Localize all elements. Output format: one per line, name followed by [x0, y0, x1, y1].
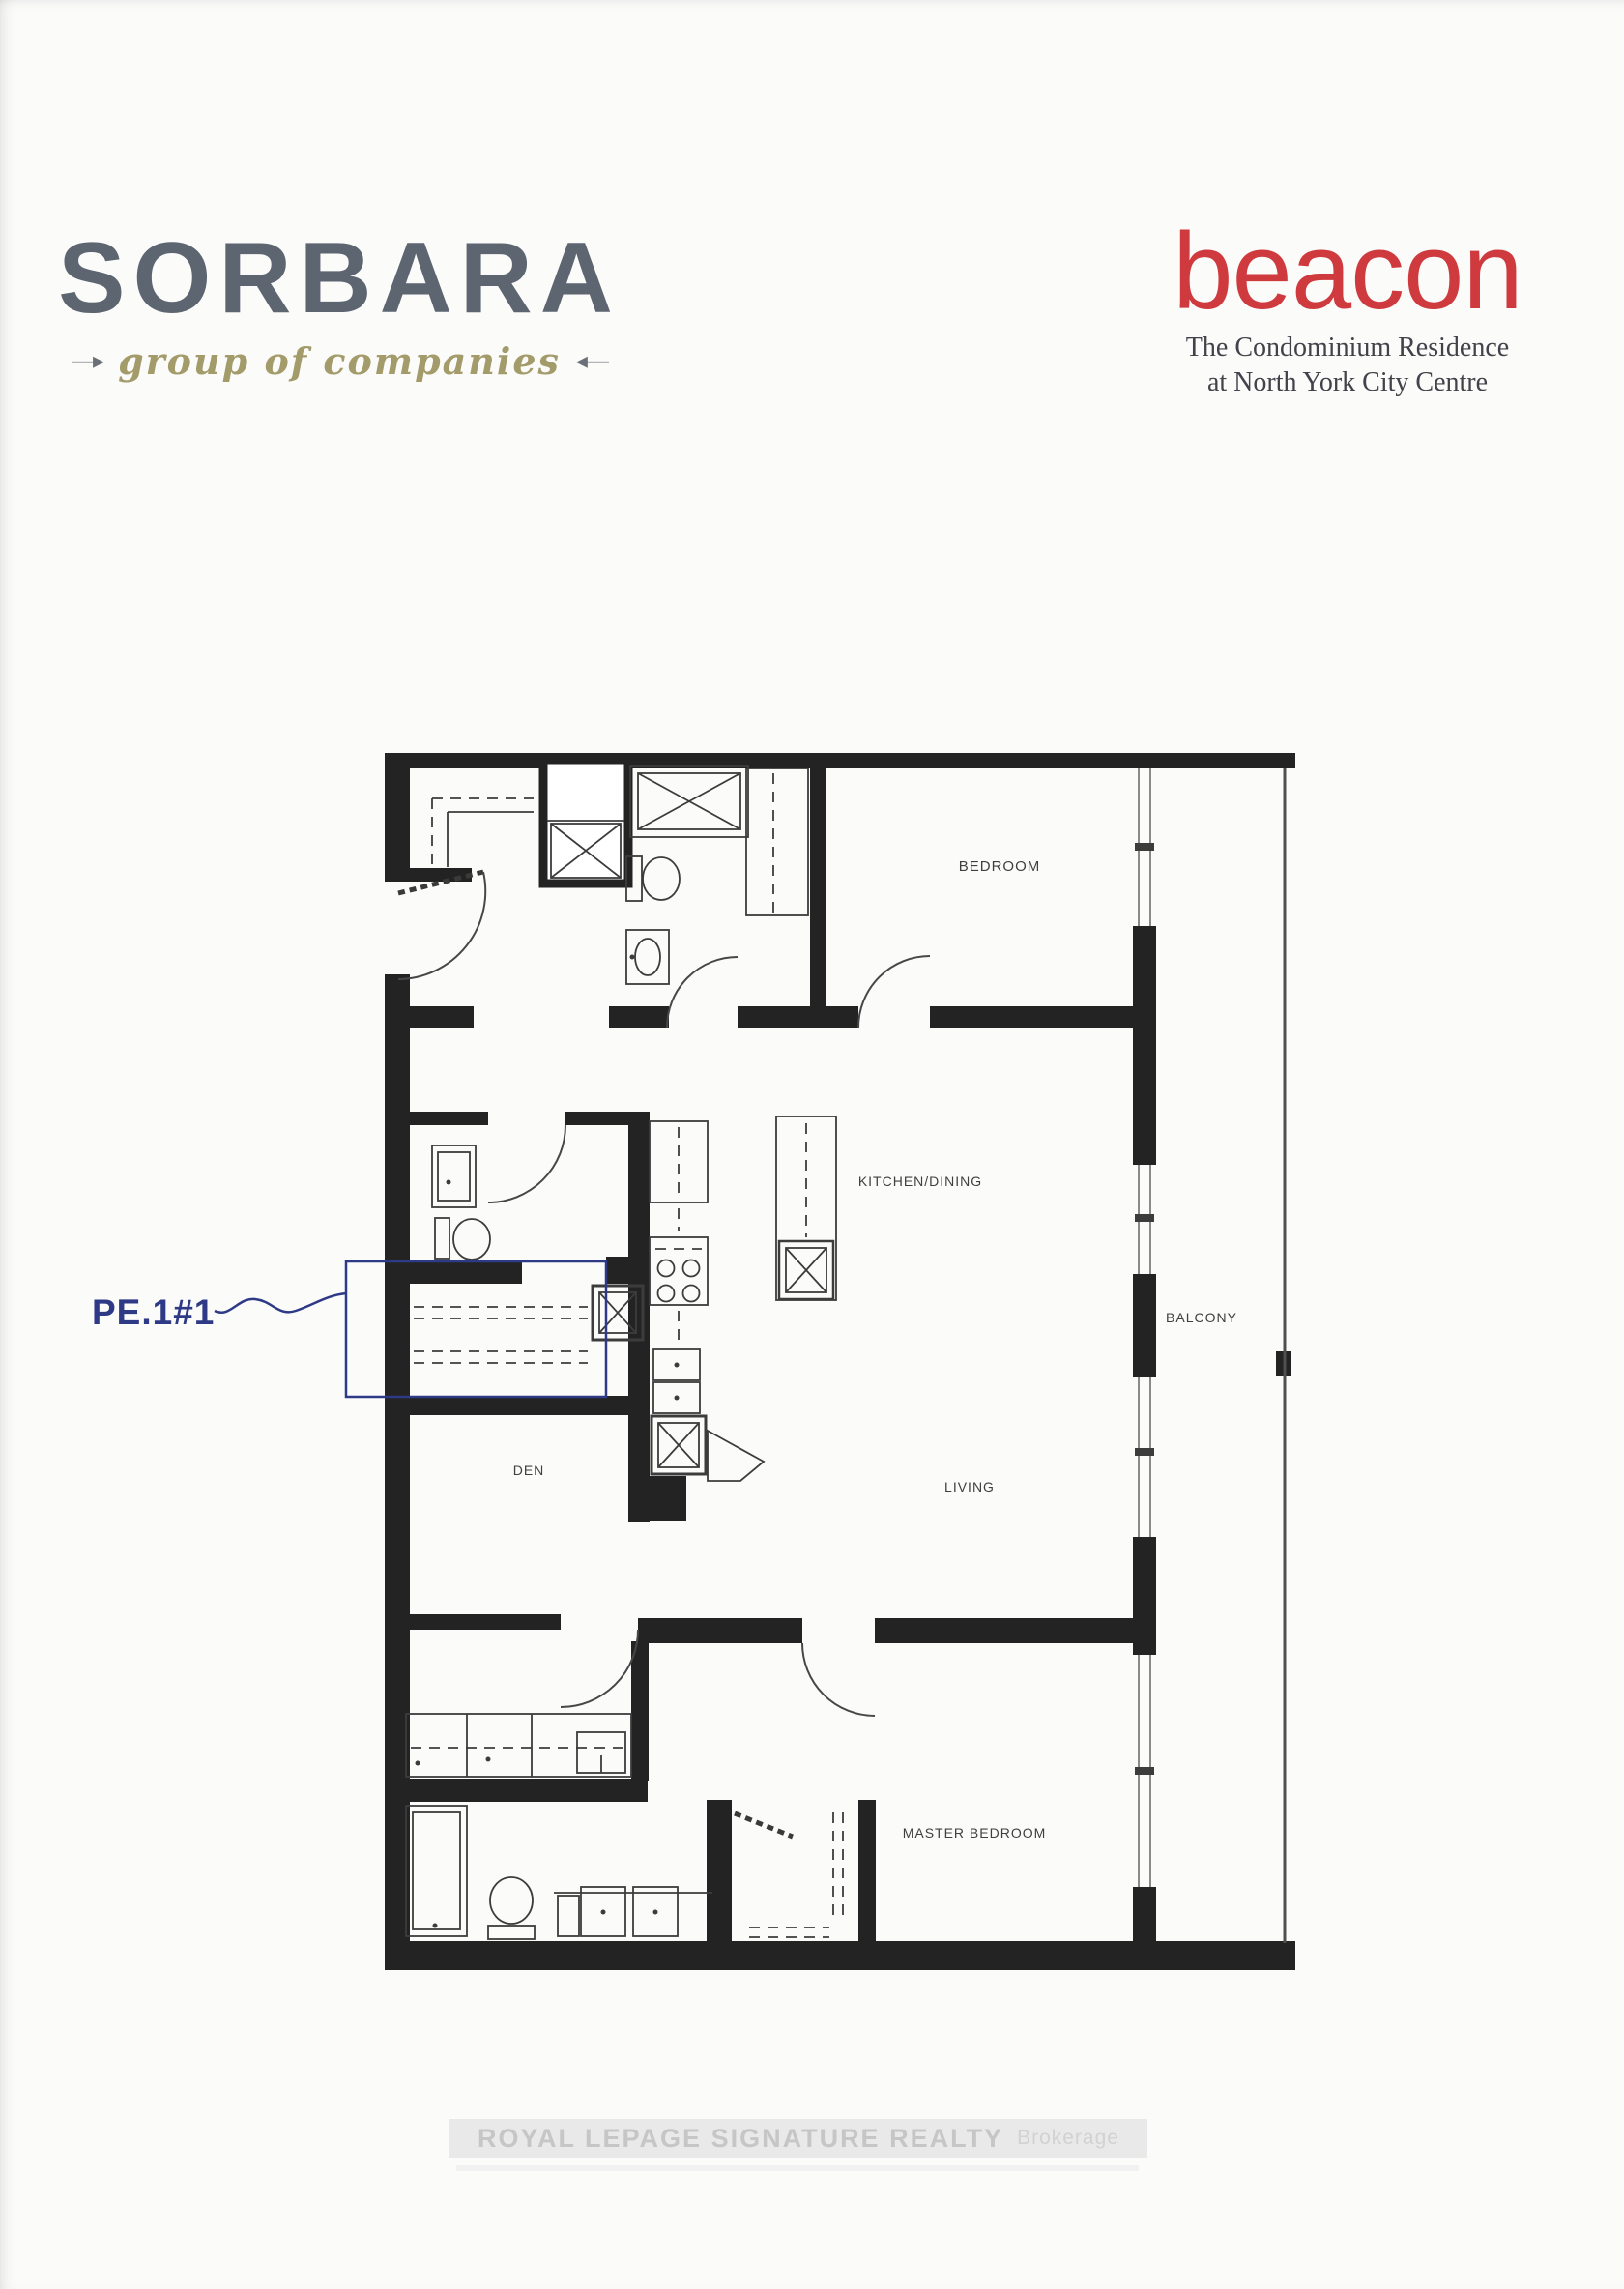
sink-top	[626, 930, 669, 984]
corner-counter	[708, 1431, 764, 1481]
sorbara-tagline: —▸ group of companies ◂—	[54, 342, 624, 381]
master-closet	[749, 1812, 843, 1937]
sorbara-tagline-text: group of companies	[118, 342, 561, 381]
kitchen-sink-cabinet	[652, 1416, 706, 1474]
room-labels: BEDROOM KITCHEN/DINING LIVING BALCONY DE…	[513, 858, 1237, 1840]
toilet-powder	[435, 1218, 490, 1260]
bedroom-closet	[746, 768, 808, 915]
unit-callout: PE.1#1	[92, 1261, 606, 1397]
lower-bath	[406, 1806, 712, 1939]
floor-plan: PE.1#1 BEDROOM KITCHEN/DINING LIVING BAL…	[58, 733, 1305, 1989]
sorbara-wordmark: SORBARA	[54, 228, 624, 329]
room-label-kitchen-dining: KITCHEN/DINING	[858, 1173, 982, 1189]
master-door-arc	[802, 1643, 875, 1716]
stove	[650, 1237, 708, 1305]
balcony-window-wall	[1135, 768, 1285, 1943]
powder-door-arc	[488, 1125, 565, 1202]
floorplan-page: SORBARA —▸ group of companies ◂— beacon …	[0, 0, 1624, 2289]
kitchen-island	[776, 1116, 836, 1300]
beacon-subtitle-line2: at North York City Centre	[1162, 365, 1533, 400]
bathroom-door-arc	[667, 957, 738, 1028]
beacon-subtitle: The Condominium Residence at North York …	[1162, 331, 1533, 400]
sorbara-logo: SORBARA —▸ group of companies ◂—	[54, 228, 624, 381]
double-sink-vanity	[554, 1887, 712, 1936]
main-bath-vanity	[406, 1714, 631, 1777]
beacon-wordmark: beacon	[1162, 220, 1533, 323]
brokerage-watermark: ROYAL LEPAGE SIGNATURE REALTY Brokerage	[449, 2119, 1147, 2158]
shower-lower	[406, 1806, 467, 1936]
laundry-closet	[414, 1286, 643, 1363]
shaft	[543, 760, 628, 884]
watermark-echo-line	[456, 2165, 1139, 2171]
tagline-arrow-left-icon: —▸	[72, 350, 102, 373]
room-label-living: LIVING	[944, 1479, 995, 1494]
unit-label: PE.1#1	[92, 1292, 215, 1332]
callout-line	[215, 1293, 346, 1313]
toilet-top	[626, 856, 680, 901]
kitchen-counters	[650, 1121, 764, 1481]
bedroom-door-arc	[858, 956, 930, 1028]
watermark-main-text: ROYAL LEPAGE SIGNATURE REALTY	[478, 2124, 1003, 2154]
foyer-closet	[432, 798, 534, 867]
watermark-suffix-text: Brokerage	[1017, 2127, 1119, 2150]
powder-room	[432, 1145, 490, 1260]
tagline-arrow-right-icon: ◂—	[576, 350, 607, 373]
room-label-balcony: BALCONY	[1166, 1310, 1237, 1325]
beacon-logo: beacon The Condominium Residence at Nort…	[1162, 220, 1533, 400]
bathroom-top	[626, 766, 748, 984]
room-label-bedroom: BEDROOM	[959, 858, 1041, 875]
room-label-den: DEN	[513, 1463, 545, 1478]
main-bath-door-arc	[561, 1630, 638, 1707]
toilet-lower	[488, 1877, 535, 1939]
master-closet-door-leaf	[735, 1813, 793, 1837]
walls	[385, 753, 1295, 1970]
beacon-subtitle-line1: The Condominium Residence	[1162, 331, 1533, 365]
room-label-master-bedroom: MASTER BEDROOM	[903, 1825, 1047, 1840]
